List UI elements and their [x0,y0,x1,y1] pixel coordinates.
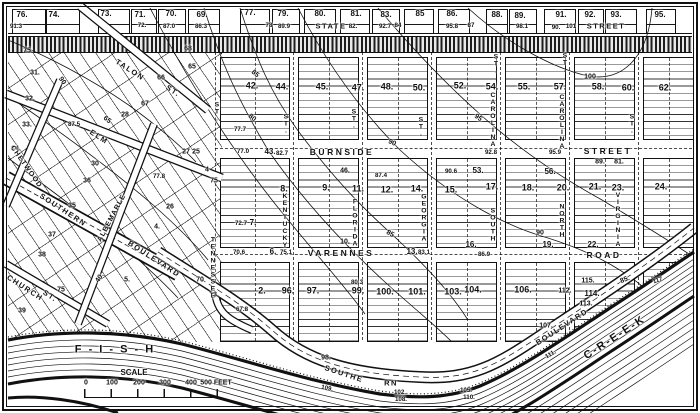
map-label: 115. [581,278,594,285]
map-label: 0 [84,380,88,387]
map-label: 75 [210,178,218,185]
map-label: 100. [376,288,394,297]
map-label: 91. [555,11,566,19]
street-label-southern-2: RN [384,379,398,387]
map-label: 67.8 [236,307,248,313]
street-label-talon: TALON [114,58,146,82]
map-label: 72. [138,23,147,29]
map-label: 90.6 [445,169,457,175]
map-label: ST. [561,53,568,74]
map-label: 86. [446,10,457,18]
map-label: 66 [157,75,165,82]
map-label: 9. [322,184,330,193]
map-label: 5. [124,277,130,284]
map-label: 87.4 [375,173,387,179]
map-label: 12. [381,186,394,195]
map-label: 33. [22,122,32,129]
map-label: ST. [213,102,220,123]
map-label: 26 [166,204,174,211]
map-label: 103. [444,288,462,297]
map-label: 70.6 [233,250,245,256]
scale-title: SCALE [120,369,147,377]
map-label: 113. [579,301,592,308]
map-label: 60. [622,84,635,93]
map-label: 89.9 [278,24,290,30]
map-label: 39 [18,308,26,315]
map-label: 72.7 [235,221,247,227]
street-label-church: CHURCH [6,274,45,303]
street-label-burnside: BURNSIDE [310,148,374,157]
map-label: 11. [352,185,364,194]
map-label: 100 [106,380,118,387]
labels-layer: 76.74.73.71.70.69.77.79.80.81.83.8586.88… [0,0,700,413]
street-label-varennes: VARENNES [308,249,375,258]
map-label: 45. [316,83,329,92]
map-label: 109. [320,385,333,394]
street-label-road: ROAD [586,251,621,260]
map-label: 55. [518,83,531,92]
map-label: 4 [205,167,209,174]
street-label-chetwood: CHETWOOD [9,145,43,190]
map-label: 90. [552,25,561,31]
map-label: ST. [350,109,357,130]
map-label: 117 [652,276,664,285]
map-label: 86.9 [478,252,490,258]
map-label: 3. [213,292,219,299]
map-label: 88. [491,11,502,19]
map-label: 80.3 [351,280,363,286]
map-label: 21. [589,183,602,192]
map-label: 32. [25,96,35,103]
map-label: 92.7 [379,24,391,30]
map-label: 81. [614,159,624,166]
street-label-state-street: STREET [587,22,626,30]
map-label: 90 [57,76,67,86]
map-label: 89. [595,159,605,166]
street-label-georgia: GEORGIA [420,194,427,243]
map-label: 54. [486,83,499,92]
map-label: 31. [30,70,40,77]
map-label: 87.5 [68,122,80,128]
map-label: 75 [57,287,65,294]
map-label: 48. [381,83,394,92]
map-label: 28 [121,112,129,119]
map-label: 92. [584,11,595,19]
map-label: 69. [196,11,207,19]
street-label-state: STATE [316,22,347,30]
map-label: 82.7 [276,151,288,157]
map-label: 67 [141,101,149,108]
map-label: 114. [584,290,599,298]
map-label: 40. [94,272,105,284]
map-label: 44. [276,83,289,92]
map-label: ST. [628,114,635,135]
map-label: 4. [154,224,160,231]
street-label-kentucky: KENTUCKY [281,193,288,249]
map-label: 20. [557,184,570,193]
map-label: 101. [408,288,426,297]
map-label: 77.8 [153,174,165,180]
street-label-burnside-street: STREET [584,147,633,156]
map-label: 50. [413,84,426,93]
street-label-southern-blvd-2: BOULEVARD [127,239,182,278]
map-label: 96. [282,287,295,296]
map-label: 79. [277,10,288,18]
map-label: 110. [463,395,475,401]
map-label: ST. [42,289,59,304]
map-label: ST. [165,84,182,99]
map-label: 77.0 [237,149,249,155]
map-label: 93. [610,11,621,19]
map-label: 30 [91,161,99,168]
map-label: 25 [192,149,200,156]
map-label: 83.1 [418,250,430,256]
map-label: 95 [473,113,483,123]
map-label: 70. [165,10,176,18]
map-label: 99. [352,287,365,296]
map-label: 77.7 [234,127,246,133]
map-label: 108. [395,397,407,403]
map-label: 65 [188,64,196,71]
map-label: 86.3 [195,24,207,30]
plat-map: 76.74.73.71.70.69.77.79.80.81.83.8586.88… [0,0,700,413]
map-label: 81. [350,10,361,18]
map-label: 47. [352,84,365,93]
map-label: 56. [544,168,555,176]
map-label: 101 [566,24,576,30]
map-label: ST. [417,117,424,138]
map-label: 100 [584,74,596,81]
map-label: 13. [406,248,417,256]
map-label: 62. [659,84,672,93]
map-label: 14. [411,185,424,194]
map-label: 36 [83,178,91,185]
map-label: 97. [307,287,320,296]
map-label: 15. [445,186,458,195]
map-label: 84 [395,23,402,29]
map-label: 87.0 [163,24,175,30]
map-label: 76. [16,11,27,19]
map-label: 200 [133,380,145,387]
map-label: 70 [196,277,204,284]
map-label: 71. [134,11,145,19]
map-label: 400 [185,380,197,387]
street-label-albemarle: ALBEMARLE [96,193,127,243]
map-label: 7. [250,219,257,227]
map-label: 57. [554,83,567,92]
map-label: 92.8 [485,150,497,156]
map-label: 85 [416,10,425,18]
map-label: 98.1 [516,24,528,30]
map-label: 10. [340,239,350,246]
map-label: 85 [385,229,395,239]
map-label: ST. [492,54,499,75]
map-label: 22. [587,241,598,249]
map-label: 106. [514,286,532,295]
map-label: 58. [592,83,605,92]
map-label: 85 [250,69,260,79]
street-label-florida: FLORIDA [351,199,358,248]
map-label: 68 [184,46,192,53]
map-label: 65 [102,115,112,125]
map-label: 98. [321,355,331,362]
map-label: 90 [536,230,544,237]
map-label: 90 [387,138,397,148]
map-label: 6. [270,248,277,256]
map-label: 83. [380,11,391,19]
map-label: 52. [454,82,467,91]
map-label: 95.8 [446,24,458,30]
map-label: 24. [655,183,668,192]
street-label-southern-blvd-1: SOUTHERN [38,192,87,228]
map-label: 78 [266,23,273,29]
map-label: 500 FEET [200,380,232,387]
map-label: 111. [545,349,558,360]
map-label: 46. [340,168,350,175]
map-label: 104. [464,286,482,295]
map-label: 42. [246,82,259,91]
street-label-south-carolina: SOUTH [489,208,496,243]
creek-name-creek: C-R-E-E-K [582,314,648,362]
map-label: 89. [514,12,525,20]
map-label: 95.9 [549,150,561,156]
map-label: 85. [619,275,631,285]
map-label: 80. [314,10,325,18]
map-label: 74. [48,11,59,19]
street-label-north-carolina: NORTH [558,204,565,239]
scale-bar [84,389,218,398]
map-label: 73. [100,10,111,18]
map-label: 87 [468,23,475,29]
map-label: ST. [282,114,289,135]
street-label-elm: ELM [88,128,109,145]
map-label: 38 [38,252,46,259]
map-label: 112. [558,288,571,295]
map-label: 17. [486,183,499,192]
map-label: 37 [48,232,56,239]
map-label: 18. [522,184,535,193]
street-label-southern-1: SOUTHE [324,364,365,384]
map-label: 95. [654,11,665,19]
map-label: CAROLINA [489,92,496,148]
map-label: CAROLINA [558,94,565,150]
map-label: 75.1 [280,250,292,256]
map-label: 82. [349,24,358,30]
map-label: 91.3 [10,24,22,30]
map-label: 80 [247,113,257,123]
map-label: 300 [159,380,171,387]
creek-name-fish: F - I - S - H [75,345,155,356]
map-label: 2. [258,287,266,296]
map-label: 16. [465,241,476,249]
street-label-virginia: VIRGINIA [614,192,621,248]
map-label: 43. [264,148,275,156]
map-label: 77. [244,9,255,17]
map-label: 27 [182,149,190,156]
map-label: 53. [472,167,483,175]
street-label-tennessee: TENNESSEE [209,237,216,300]
map-label: 75. [23,48,33,55]
map-label: 19. [542,241,553,249]
